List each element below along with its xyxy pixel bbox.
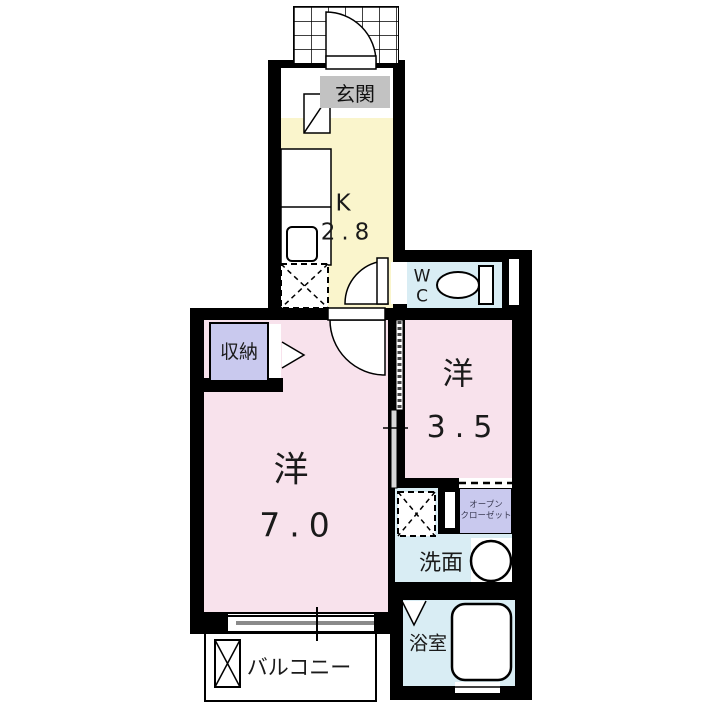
fixtures-layer — [0, 0, 720, 720]
western-main-label: 洋 — [273, 454, 308, 489]
wall-notch — [302, 75, 309, 89]
bathroom-label: 浴室 — [409, 635, 447, 654]
western-small-label: 洋 — [443, 360, 474, 391]
wc-label-c: C — [416, 289, 428, 306]
floor-plan: 収納 — [0, 0, 720, 720]
entrance-door-arc — [326, 12, 376, 62]
wc-door-leaf — [377, 258, 388, 304]
western-main-area: 7.0 — [259, 509, 338, 542]
washbasin-icon — [471, 541, 511, 581]
western-small-area: 3.5 — [427, 413, 502, 443]
toilet-bowl-icon — [437, 272, 479, 298]
main-room-door-leaf — [328, 308, 385, 320]
open-closet-label-line2: クローゼット — [460, 512, 511, 521]
main-room-door-arc — [330, 320, 385, 375]
balcony-label: バルコニー — [247, 658, 352, 679]
kitchen-area: 2.8 — [321, 222, 376, 245]
bathroom-folding-door-icon — [402, 601, 426, 625]
bathtub-icon — [452, 604, 511, 680]
sliding-door — [391, 410, 397, 488]
storage-folding-door-icon — [282, 342, 304, 368]
kitchen-sink-icon — [287, 227, 317, 261]
toilet-tank-icon — [479, 266, 493, 304]
entrance-label-box: 玄関 — [320, 76, 390, 108]
entrance-label: 玄関 — [335, 78, 375, 107]
kitchen-letter: K — [335, 193, 350, 216]
entrance-door-leaf — [326, 56, 376, 69]
open-closet-label-line1: オープン — [469, 501, 503, 510]
washroom-label: 洗面 — [419, 553, 463, 575]
wc-label-w: W — [414, 269, 431, 286]
